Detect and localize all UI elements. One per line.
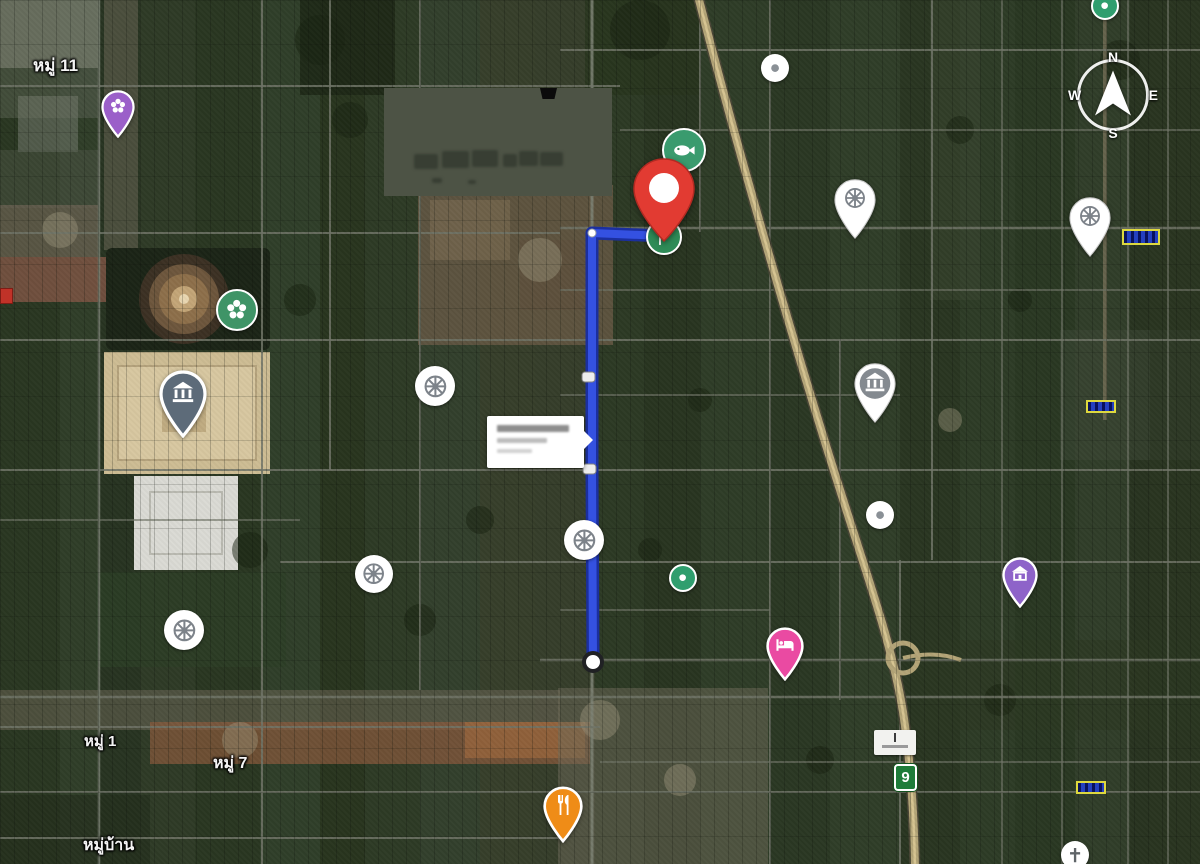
redaction-notch	[540, 88, 557, 99]
buddhist-temple-poi[interactable]	[355, 555, 393, 593]
callout-blurred-text	[497, 425, 569, 432]
gray-dot-poi[interactable]	[761, 54, 789, 82]
blue-yellow-sign	[1122, 229, 1160, 245]
dot-icon	[765, 58, 785, 78]
redaction-box	[384, 88, 612, 196]
green-dot-poi-circle	[669, 564, 697, 592]
museum-icon	[1009, 559, 1031, 590]
gray-dot-poi-circle	[761, 54, 789, 82]
buddhist-temple-pin[interactable]	[1068, 196, 1112, 258]
buddhist-temple-poi[interactable]	[564, 520, 604, 560]
area-label: หมู่บ้าน	[83, 833, 134, 858]
bank-pin[interactable]	[853, 362, 897, 424]
flower-icon	[223, 296, 250, 323]
park-poi[interactable]	[216, 289, 258, 331]
bank-icon	[169, 372, 198, 413]
area-label: หมู่ 11	[33, 52, 78, 79]
dot-icon	[674, 569, 691, 586]
blue-yellow-sign	[1076, 781, 1106, 794]
buddhist-temple-poi-circle	[415, 366, 455, 406]
museum-pin[interactable]	[1002, 557, 1038, 608]
dot-icon	[1096, 0, 1113, 15]
area-label: หมู่ 7	[213, 751, 247, 776]
church-poi[interactable]	[1061, 841, 1089, 864]
wheel-icon	[1077, 198, 1103, 235]
compass-west-label: W	[1068, 88, 1081, 102]
compass-rose: N E S W	[1069, 51, 1157, 139]
green-dot-poi-circle	[1091, 0, 1119, 20]
hotel-pin[interactable]	[766, 627, 804, 681]
fork-icon	[551, 788, 575, 822]
buddhist-temple-poi[interactable]	[164, 610, 204, 650]
pin-inner-circle	[649, 173, 679, 203]
flower-icon	[108, 91, 128, 120]
highway-9-shield: 9	[894, 764, 917, 791]
green-dot-poi[interactable]	[1091, 0, 1119, 20]
restaurant-pin[interactable]	[543, 786, 583, 843]
temple-landmark-pin[interactable]	[159, 370, 207, 438]
route-mid-markers	[582, 372, 596, 474]
green-dot-poi[interactable]	[669, 564, 697, 592]
buddhist-temple-poi[interactable]	[415, 366, 455, 406]
satellite-map[interactable]: N E S W หมู่ 11หมู่ 1หมู่ 7หมู่บ้าน9	[0, 0, 1200, 864]
compass-east-label: E	[1149, 88, 1158, 102]
park-poi-circle	[216, 289, 258, 331]
route-end-circle	[584, 653, 602, 671]
compass-needle-icon	[1091, 69, 1135, 119]
red-edge-marker	[0, 288, 13, 304]
buddhist-temple-poi-circle	[564, 520, 604, 560]
church-poi-circle	[1061, 841, 1089, 864]
wheel-icon	[421, 372, 450, 401]
wheel-icon	[570, 526, 599, 555]
gray-dot-poi[interactable]	[866, 501, 894, 529]
callout-blurred-text	[497, 438, 547, 443]
dot-icon	[870, 505, 890, 525]
cross-icon	[1065, 845, 1085, 864]
area-label: หมู่ 1	[84, 729, 116, 753]
buddhist-temple-pin[interactable]	[833, 178, 877, 240]
road-sign-white	[874, 730, 916, 755]
route-corner-dot	[588, 229, 596, 237]
gray-dot-poi-circle	[866, 501, 894, 529]
bed-icon	[774, 629, 797, 661]
route-info-callout[interactable]	[487, 416, 584, 468]
buddhist-temple-poi-circle	[164, 610, 204, 650]
buddhist-temple-poi-circle	[355, 555, 393, 593]
destination-pin[interactable]	[632, 157, 696, 243]
wheel-icon	[842, 180, 868, 217]
callout-blurred-text	[497, 449, 532, 453]
wheel-icon	[360, 560, 387, 587]
government-office-pin[interactable]	[101, 90, 135, 138]
bank-icon	[862, 364, 888, 401]
wheel-icon	[170, 616, 199, 645]
compass-south-label: S	[1108, 126, 1117, 140]
compass-north-label: N	[1108, 50, 1118, 64]
highway	[697, 0, 961, 864]
blue-yellow-sign	[1086, 400, 1116, 413]
